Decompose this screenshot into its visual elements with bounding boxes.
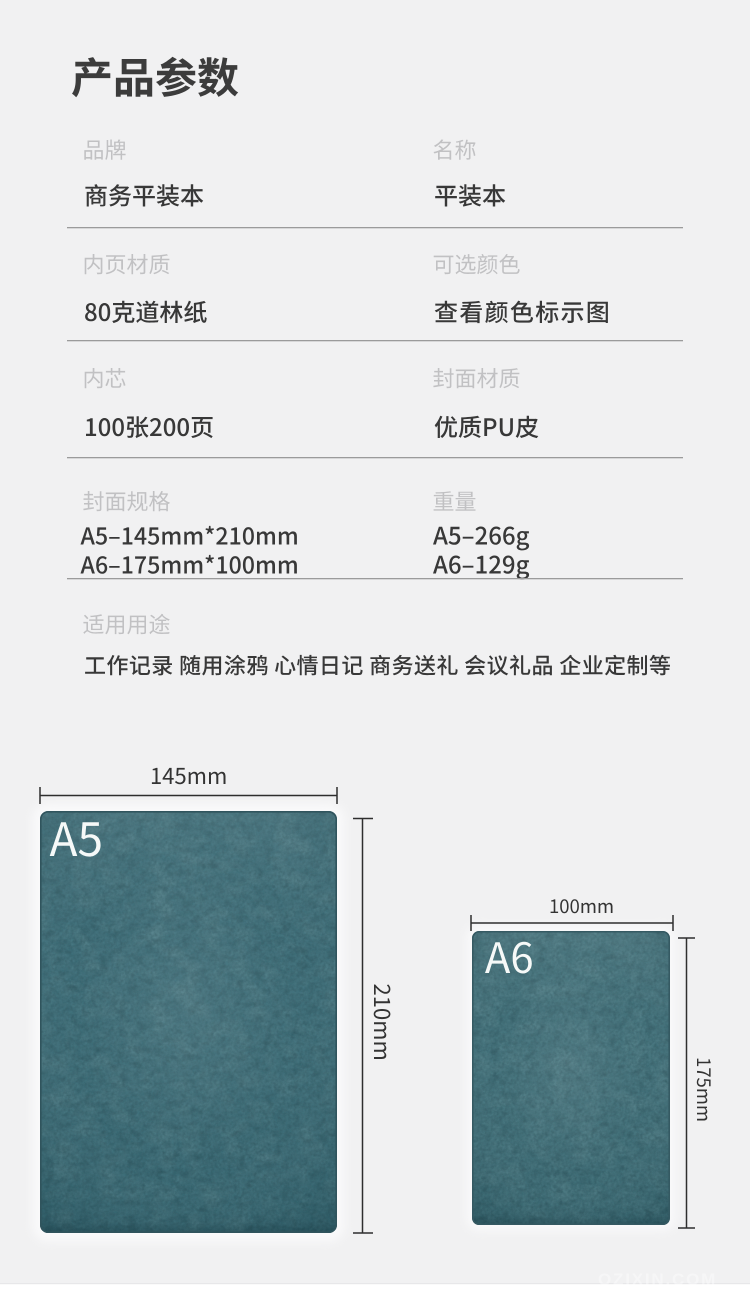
svg-text:OZIXIN.COM: OZIXIN.COM [598,1270,717,1289]
